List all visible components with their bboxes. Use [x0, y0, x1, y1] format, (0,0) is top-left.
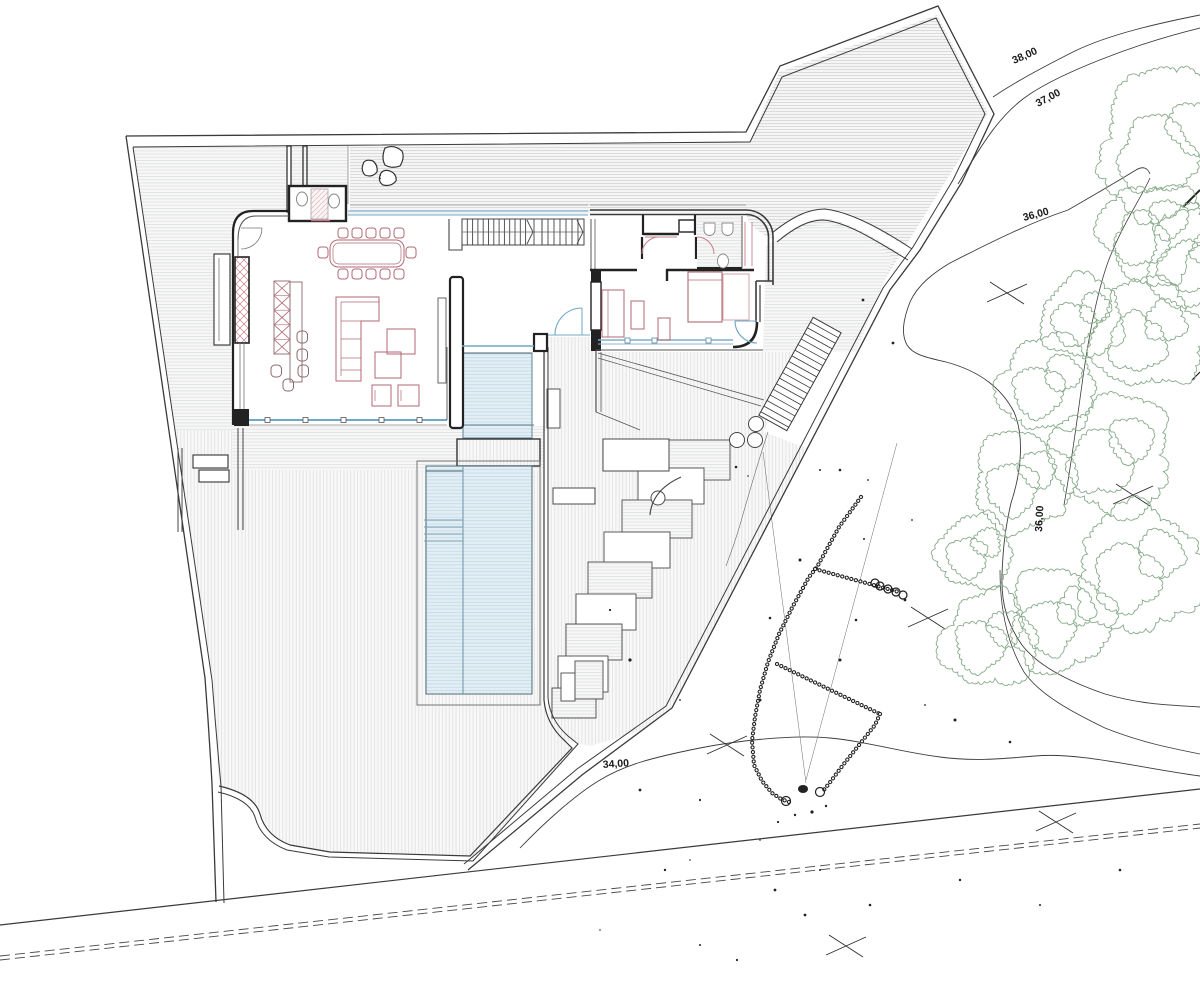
svg-text:37,00: 37,00: [1034, 87, 1063, 110]
svg-text:36,00: 36,00: [1033, 505, 1046, 532]
svg-text:38,00: 38,00: [1010, 45, 1039, 67]
svg-text:36,00: 36,00: [1022, 205, 1051, 223]
svg-text:34,00: 34,00: [602, 757, 629, 771]
